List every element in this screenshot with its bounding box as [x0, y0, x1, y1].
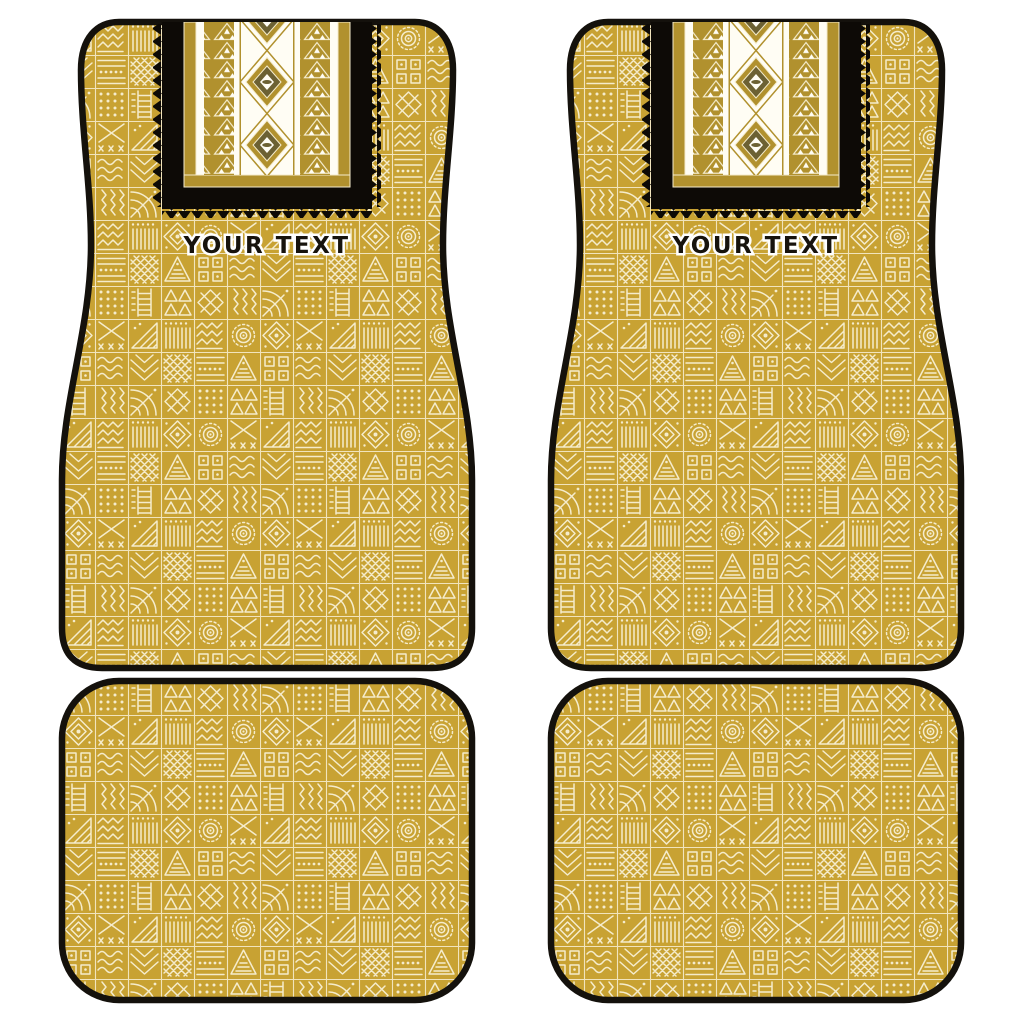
custom-text-front-left: YOUR TEXT [182, 233, 350, 259]
front-left-collar-band [153, 0, 381, 218]
rear-left-mat [62, 681, 472, 1000]
mats-illustration: YOUR TEXT YOUR TEXT [0, 0, 1024, 1024]
front-left-mat: YOUR TEXT [62, 0, 472, 668]
front-right-mat: YOUR TEXT [551, 0, 961, 668]
custom-text-front-right: YOUR TEXT [671, 233, 839, 259]
car-floor-mats-product-image: YOUR TEXT YOUR TEXT [0, 0, 1024, 1024]
front-right-collar-band [642, 0, 870, 218]
rear-right-mat [551, 681, 961, 1000]
